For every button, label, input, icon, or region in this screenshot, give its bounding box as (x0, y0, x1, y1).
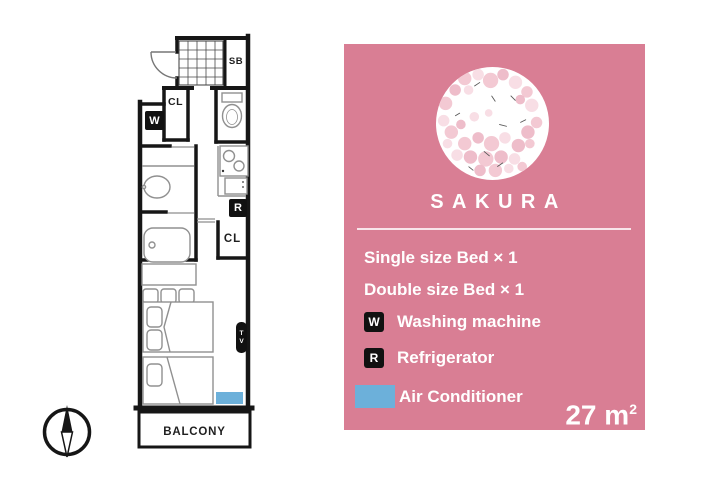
washbasin (142, 166, 194, 198)
pillow (147, 364, 162, 386)
single-bed (143, 357, 213, 404)
closet-upper-label: CL (162, 96, 189, 108)
cherry-blossom-image (436, 67, 549, 180)
floor-cushions (143, 289, 194, 303)
shoe-box-label: SB (224, 56, 248, 67)
living-counter (142, 264, 196, 285)
closet-lower-label: CL (215, 233, 250, 245)
kitchen-stove (220, 146, 248, 176)
door-openings (168, 147, 215, 222)
single-bed-line: Single size Bed × 1 (364, 247, 518, 269)
washer-badge-icon: W (364, 312, 384, 332)
double-bed (143, 302, 213, 352)
double-bed-line: Double size Bed × 1 (364, 279, 524, 301)
compass-icon (45, 405, 90, 457)
toilet (222, 93, 242, 128)
tv-badge: TV (236, 322, 247, 353)
refrigerator-line: R Refrigerator (364, 348, 494, 368)
entrance-grid (179, 41, 223, 85)
property-info-card: SAKURA Single size Bed × 1 Double size B… (344, 44, 645, 430)
air-conditioner-label: Air Conditioner (399, 387, 523, 407)
area-unit: m (604, 399, 629, 430)
bathtub (144, 228, 190, 262)
property-name: SAKURA (344, 191, 645, 214)
refrigerator-badge: R (229, 199, 247, 217)
refrigerator-label: Refrigerator (397, 348, 494, 368)
washing-machine-badge: W (145, 111, 164, 130)
blossom-petals (438, 69, 542, 177)
entry-door-arc (151, 52, 177, 78)
air-conditioner-marker (216, 392, 243, 404)
air-conditioner-line: Air Conditioner (355, 385, 523, 408)
pillow (147, 330, 162, 350)
washing-machine-label: Washing machine (397, 312, 541, 332)
washing-machine-line: W Washing machine (364, 312, 541, 332)
divider (357, 228, 631, 230)
pillow (147, 307, 162, 327)
kitchen-sink (225, 178, 247, 194)
fridge-badge-icon: R (364, 348, 384, 368)
area-value: 27 (565, 399, 596, 430)
ac-color-swatch-icon (355, 385, 395, 408)
listing-floorplan-image: SB CL CL W R TV BALCONY (0, 0, 720, 480)
area-sup: 2 (629, 401, 637, 417)
balcony-label: BALCONY (139, 426, 250, 438)
floor-area: 27 m2 (565, 394, 637, 430)
